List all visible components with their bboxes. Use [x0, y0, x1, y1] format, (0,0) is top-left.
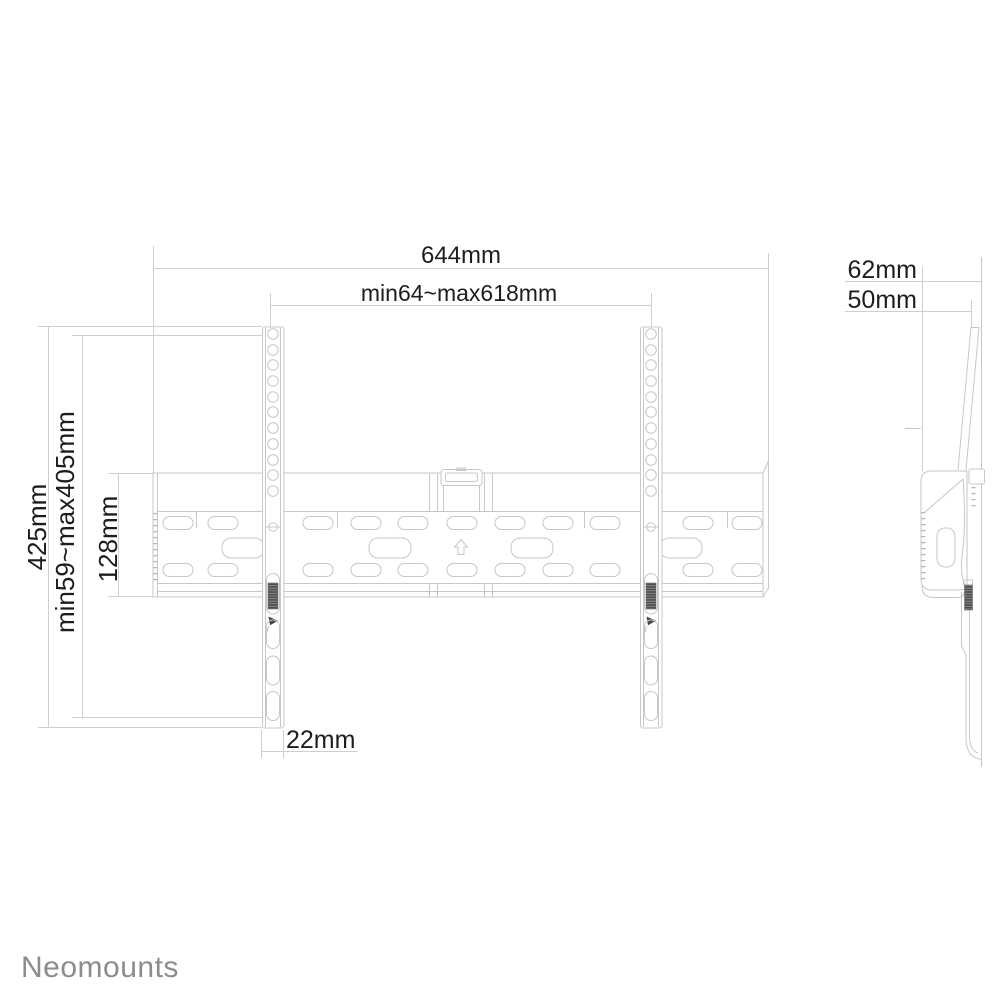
dim-label-vertical-adjust-range: min59~max405mm — [51, 423, 79, 633]
side-view — [845, 257, 985, 767]
dim-label-depth-min: 50mm — [827, 287, 917, 314]
dim-label-horizontal-adjust-range: min64~max618mm — [329, 281, 589, 306]
side-top-clip — [969, 469, 985, 484]
front-view — [38, 246, 769, 758]
dim-label-total-height: 425mm — [23, 482, 51, 572]
right-rail — [641, 327, 663, 728]
side-hook-bracket — [921, 471, 973, 610]
technical-drawing — [0, 0, 1004, 1004]
dim-label-total-width: 644mm — [381, 243, 541, 269]
dim-label-rail-width: 22mm — [286, 727, 355, 754]
left-rail — [263, 327, 285, 728]
brand-logo: Neomounts — [21, 951, 179, 985]
dim-label-wall-plate-height: 128mm — [94, 489, 122, 589]
dim-label-depth-max: 62mm — [827, 257, 917, 284]
diagram-canvas: 644mm min64~max618mm 425mm min59~max405m… — [0, 0, 1004, 1004]
